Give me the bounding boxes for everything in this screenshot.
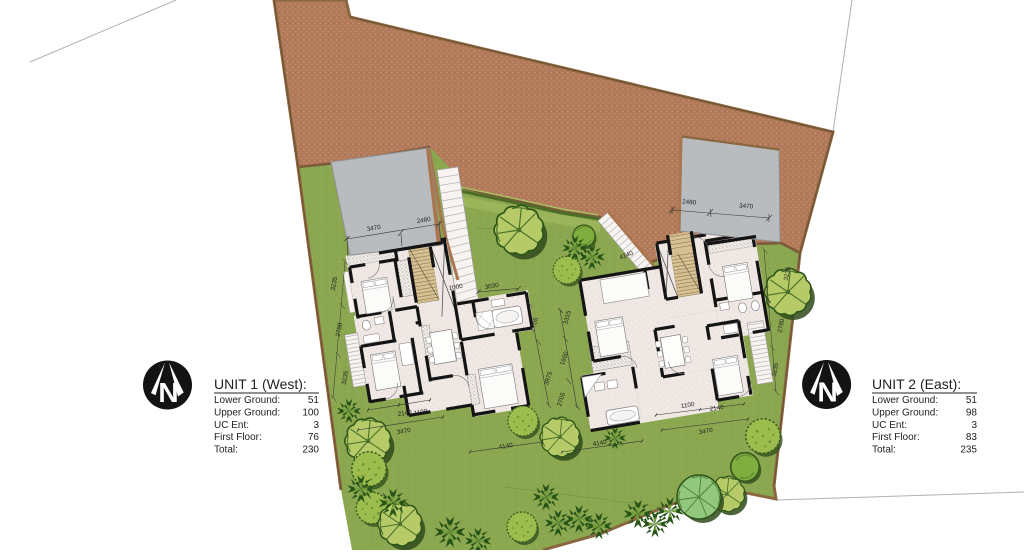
svg-text:First Floor:: First Floor: [214, 432, 262, 443]
svg-text:N: N [817, 377, 837, 408]
svg-text:Total:: Total: [872, 445, 896, 456]
svg-text:2480: 2480 [682, 198, 697, 206]
svg-text:100: 100 [302, 407, 319, 418]
svg-text:76: 76 [308, 432, 320, 443]
svg-text:51: 51 [966, 395, 978, 406]
svg-text:Lower Ground:: Lower Ground: [214, 395, 280, 406]
svg-text:51: 51 [308, 395, 320, 406]
svg-text:Lower Ground:: Lower Ground: [872, 395, 938, 406]
svg-text:3470: 3470 [739, 202, 754, 210]
svg-text:Total:: Total: [214, 445, 238, 456]
svg-text:UC Ent:: UC Ent: [872, 420, 907, 431]
svg-text:Upper Ground:: Upper Ground: [872, 407, 938, 418]
svg-text:UC Ent:: UC Ent: [214, 420, 249, 431]
svg-text:3: 3 [971, 420, 977, 431]
svg-text:Upper Ground:: Upper Ground: [214, 407, 280, 418]
svg-text:N: N [158, 377, 178, 408]
svg-text:230: 230 [302, 445, 319, 456]
svg-text:First Floor:: First Floor: [872, 432, 920, 443]
svg-text:83: 83 [966, 432, 978, 443]
svg-text:UNIT 2 (East):: UNIT 2 (East): [872, 376, 961, 392]
svg-text:235: 235 [960, 445, 977, 456]
svg-text:UNIT 1 (West):: UNIT 1 (West): [214, 376, 307, 392]
svg-text:98: 98 [966, 407, 978, 418]
svg-text:3: 3 [313, 420, 319, 431]
